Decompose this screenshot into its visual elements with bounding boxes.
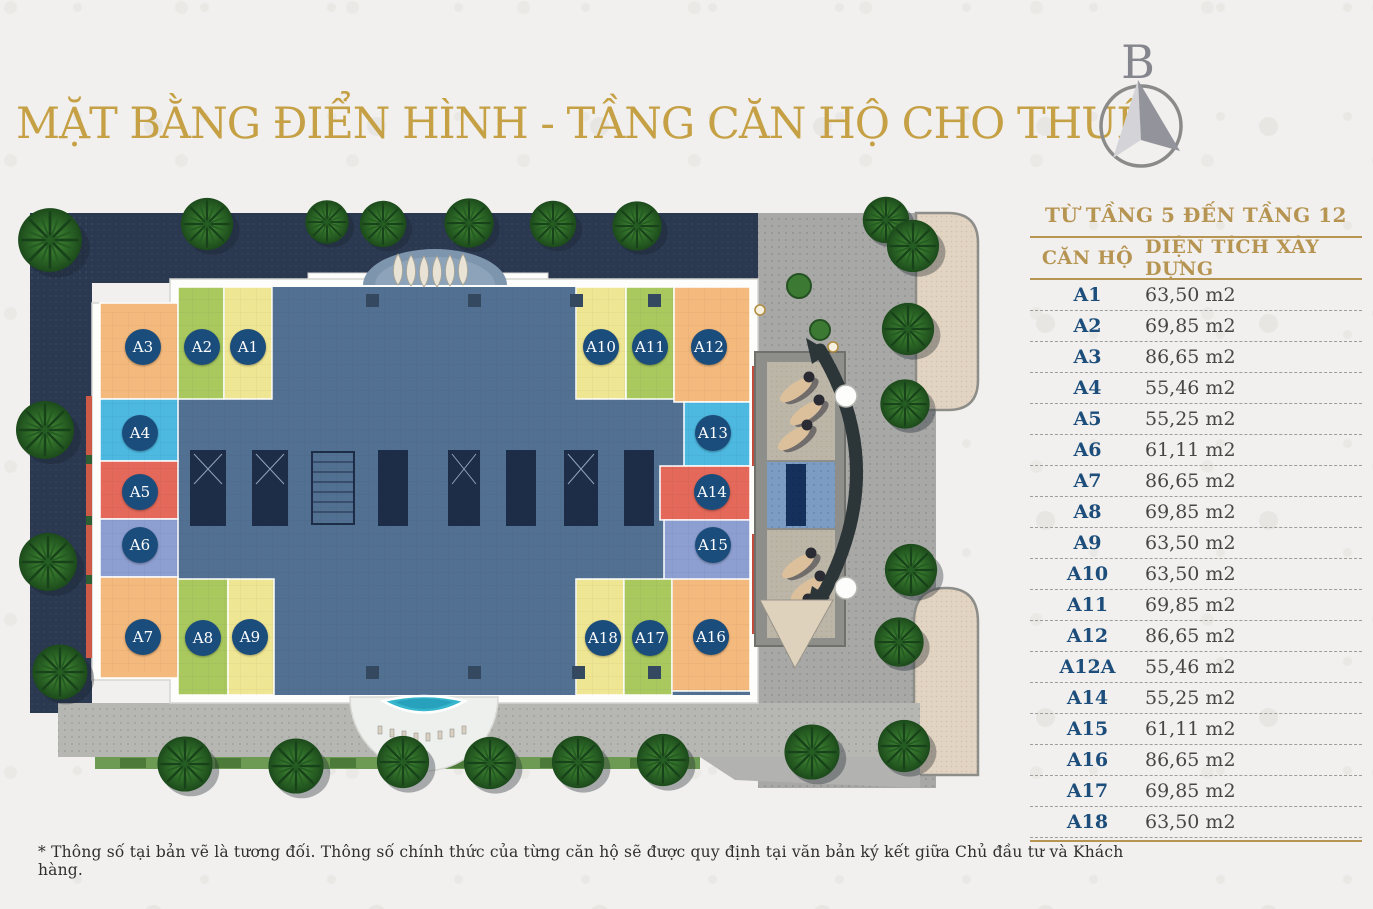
area-cell: 69,85 m2 <box>1145 501 1362 523</box>
area-cell: 55,46 m2 <box>1145 377 1362 399</box>
unit-cell: A3 <box>1030 346 1145 368</box>
table-row: A1063,50 m2 <box>1030 559 1362 590</box>
area-cell: 69,85 m2 <box>1145 780 1362 802</box>
bush <box>787 274 811 298</box>
unit-label-a13: A13 <box>695 415 731 451</box>
unit-cell: A11 <box>1030 594 1145 616</box>
unit-label-a6: A6 <box>122 527 158 563</box>
unit-label-a18: A18 <box>585 620 621 656</box>
area-cell: 55,25 m2 <box>1145 408 1362 430</box>
unit-cell: A10 <box>1030 563 1145 585</box>
unit-cell: A5 <box>1030 408 1145 430</box>
area-cell: 55,46 m2 <box>1145 656 1362 678</box>
unit-cell: A6 <box>1030 439 1145 461</box>
table-caption: TỪ TẦNG 5 ĐẾN TẦNG 12 <box>1030 203 1362 236</box>
unit-cell: A18 <box>1030 811 1145 833</box>
unit-label-a9: A9 <box>232 619 268 655</box>
column-header-area: DIỆN TÍCH XÂY DỰNG <box>1145 236 1362 280</box>
unit-label-a17: A17 <box>632 620 668 656</box>
unit-label-a3: A3 <box>125 329 161 365</box>
unit-cell: A9 <box>1030 532 1145 554</box>
unit-label-a2: A2 <box>184 329 220 365</box>
area-cell: 86,65 m2 <box>1145 749 1362 771</box>
unit-cell: A1 <box>1030 284 1145 306</box>
unit-cell: A16 <box>1030 749 1145 771</box>
table-row: A455,46 m2 <box>1030 373 1362 404</box>
table-row: A786,65 m2 <box>1030 466 1362 497</box>
divider <box>1030 840 1362 842</box>
unit-label-a10: A10 <box>583 329 619 365</box>
unit-label-a16: A16 <box>693 619 729 655</box>
unit-label-a11: A11 <box>632 329 668 365</box>
area-cell: 63,50 m2 <box>1145 811 1362 833</box>
table-row: A555,25 m2 <box>1030 404 1362 435</box>
area-table: TỪ TẦNG 5 ĐẾN TẦNG 12 CĂN HỘ DIỆN TÍCH X… <box>1030 203 1362 842</box>
unit-label-a15: A15 <box>695 527 731 563</box>
area-cell: 61,11 m2 <box>1145 718 1362 740</box>
unit-cell: A2 <box>1030 315 1145 337</box>
bush <box>810 320 830 340</box>
brochure-page: { "page": { "title": "MẶT BẰNG ĐIỂN HÌNH… <box>0 0 1373 909</box>
table-row: A1286,65 m2 <box>1030 621 1362 652</box>
unit-cell: A12A <box>1030 656 1145 678</box>
unit-cell: A14 <box>1030 687 1145 709</box>
area-cell: 86,65 m2 <box>1145 346 1362 368</box>
table-row: A1169,85 m2 <box>1030 590 1362 621</box>
table-row: A1686,65 m2 <box>1030 745 1362 776</box>
unit-label-a1: A1 <box>230 329 266 365</box>
area-cell: 86,65 m2 <box>1145 470 1362 492</box>
unit-cell: A12 <box>1030 625 1145 647</box>
page-title: MẶT BẰNG ĐIỂN HÌNH - TẦNG CĂN HỘ CHO THU… <box>16 99 1076 149</box>
table-row: A163,50 m2 <box>1030 280 1362 311</box>
unit-cell: A4 <box>1030 377 1145 399</box>
unit-label-a12: A12 <box>691 329 727 365</box>
gate-lamp <box>828 342 838 352</box>
unit-label-a8: A8 <box>185 620 221 656</box>
unit-cell: A8 <box>1030 501 1145 523</box>
table-row: A869,85 m2 <box>1030 497 1362 528</box>
table-row: A269,85 m2 <box>1030 311 1362 342</box>
plaza-lamp <box>835 385 857 407</box>
table-row: A1455,25 m2 <box>1030 683 1362 714</box>
unit-label-a14: A14 <box>694 474 730 510</box>
area-cell: 69,85 m2 <box>1145 594 1362 616</box>
table-header: CĂN HỘ DIỆN TÍCH XÂY DỰNG <box>1030 238 1362 278</box>
area-cell: 63,50 m2 <box>1145 563 1362 585</box>
area-cell: 55,25 m2 <box>1145 687 1362 709</box>
table-row: A1561,11 m2 <box>1030 714 1362 745</box>
area-cell: 61,11 m2 <box>1145 439 1362 461</box>
table-row: A12A55,46 m2 <box>1030 652 1362 683</box>
area-cell: 63,50 m2 <box>1145 284 1362 306</box>
footnote: * Thông số tại bản vẽ là tương đối. Thôn… <box>38 843 1138 879</box>
table-row: A963,50 m2 <box>1030 528 1362 559</box>
table-row: A661,11 m2 <box>1030 435 1362 466</box>
unit-label-a4: A4 <box>122 415 158 451</box>
unit-label-a5: A5 <box>122 474 158 510</box>
table-row: A1769,85 m2 <box>1030 776 1362 807</box>
column-header-unit: CĂN HỘ <box>1030 247 1145 269</box>
plaza-lamp <box>835 577 857 599</box>
unit-cell: A7 <box>1030 470 1145 492</box>
area-cell: 69,85 m2 <box>1145 315 1362 337</box>
unit-cell: A15 <box>1030 718 1145 740</box>
table-row: A1863,50 m2 <box>1030 807 1362 838</box>
area-cell: 63,50 m2 <box>1145 532 1362 554</box>
area-cell: 86,65 m2 <box>1145 625 1362 647</box>
table-row: A386,65 m2 <box>1030 342 1362 373</box>
gate-lamp <box>755 305 765 315</box>
unit-label-a7: A7 <box>125 619 161 655</box>
unit-cell: A17 <box>1030 780 1145 802</box>
compass-icon: B <box>1075 22 1235 202</box>
